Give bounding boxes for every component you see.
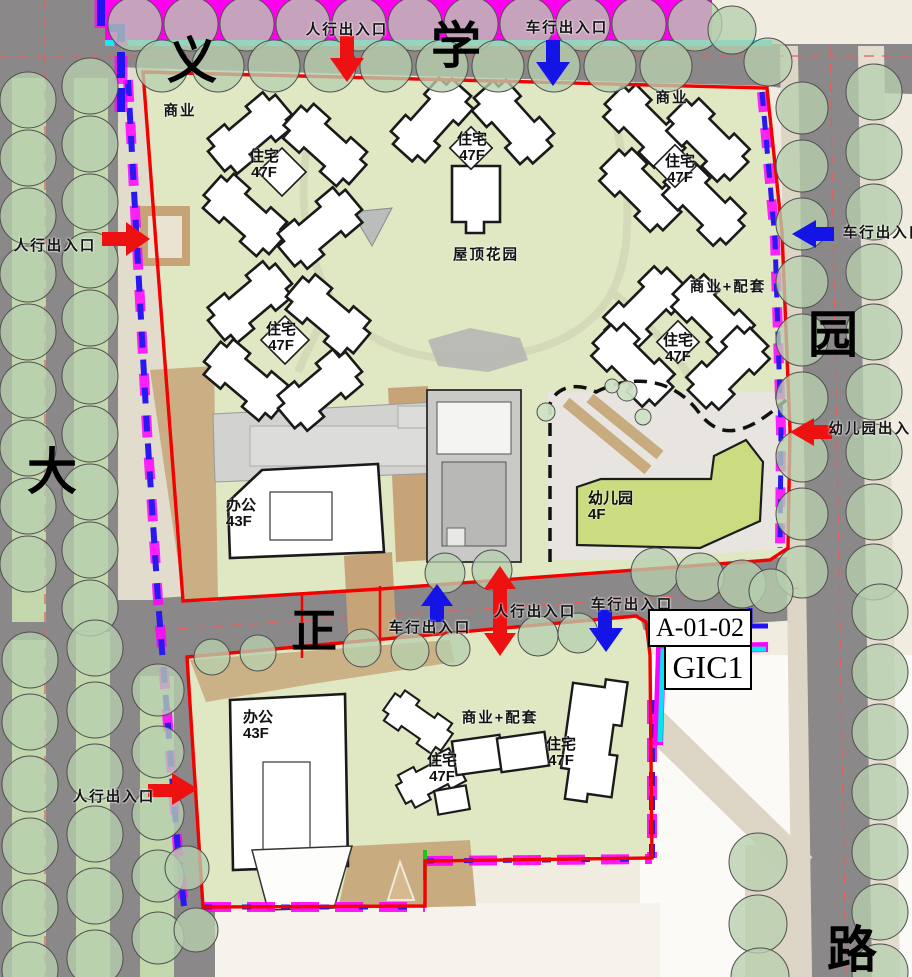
tree-icon [776,488,828,540]
tree-icon [0,304,56,360]
tree-icon [749,569,793,613]
central-podium-building [427,390,521,562]
label-commercial-ne: 商业 [656,87,689,108]
label-residential-e: 住宅47F [663,333,693,365]
tree-icon [0,362,56,418]
entrance-label-pedestrian-southwest: 人行出入口 [73,786,156,807]
label-kindergarten: 幼儿园4F [588,491,633,523]
street-name-xue: 学 [431,6,481,78]
tree-icon [132,726,184,778]
tree-icon [62,174,118,230]
tree-icon [2,694,58,750]
label-residential-lower-1: 住宅47F [427,753,457,785]
label-residential-lower-2: 住宅47F [546,737,576,769]
tree-icon [776,198,828,250]
tree-icon [194,639,230,675]
label-commercial-support-upper: 商业+配套 [690,276,766,297]
label-residential-w: 住宅47F [266,322,296,354]
label-commercial-nw: 商业 [164,100,197,121]
tree-icon [2,818,58,874]
label-roof-garden: 屋顶花园 [453,244,519,265]
tree-icon [617,381,637,401]
tree-icon [852,704,908,760]
label-office-upper: 办公43F [226,498,256,530]
tree-icon [776,82,828,134]
entrance-label-pedestrian-middle: 人行出入口 [494,601,577,622]
tree-icon [174,908,218,952]
tree-icon [62,290,118,346]
parcel-zoning-box: GIC1 [664,645,752,690]
street-name-yuan: 园 [808,295,858,367]
tree-icon [852,644,908,700]
site-plan-map: 义 学 园 大 正 路 人行出入口 车行出入口 人行出入口 车行出入口 幼儿园出… [0,0,912,977]
tree-icon [2,632,58,688]
tree-icon [676,553,724,601]
tree-icon [776,372,828,424]
tree-icon [2,756,58,812]
tree-icon [729,895,787,953]
tree-icon [744,38,792,86]
tree-icon [62,58,118,114]
tree-icon [360,40,412,92]
tree-icon [67,806,123,862]
tree-icon [0,72,56,128]
tree-icon [67,620,123,676]
tree-icon [391,632,429,670]
tree-icon [62,522,118,578]
tree-icon [846,64,902,120]
tree-icon [2,880,58,936]
tree-icon [640,40,692,92]
tree-icon [165,846,209,890]
tree-icon [584,40,636,92]
entrance-label-vehicle-north: 车行出入口 [526,17,609,38]
tree-icon [518,616,558,656]
tree-icon [240,635,276,671]
tree-icon [846,484,902,540]
tree-icon [425,553,465,593]
entrance-label-vehicle-east: 车行出入口 [843,222,912,243]
label-residential-ne: 住宅47F [665,154,695,186]
street-name-zheng: 正 [291,595,337,661]
tree-icon [62,348,118,404]
entrance-label-pedestrian-west: 人行出入口 [14,235,97,256]
tree-icon [635,409,651,425]
parcel-code-box: A-01-02 [648,609,752,647]
tree-icon [132,664,184,716]
tree-icon [852,764,908,820]
label-office-lower: 办公43F [243,710,273,742]
tree-icon [776,140,828,192]
label-residential-n: 住宅47F [457,132,487,164]
tree-icon [0,536,56,592]
tree-icon [729,833,787,891]
street-name-lu: 路 [827,910,877,977]
tree-icon [605,379,619,393]
label-commercial-support-lower: 商业+配套 [462,707,538,728]
tree-icon [537,403,555,421]
label-residential-nw: 住宅47F [249,149,279,181]
tree-icon [62,116,118,172]
tree-icon [67,682,123,738]
tree-icon [852,824,908,880]
tree-icon [0,130,56,186]
tree-icon [846,124,902,180]
street-name-yi: 义 [167,21,217,93]
tree-icon [248,40,300,92]
tree-icon [67,868,123,924]
entrance-label-vehicle-middle-1: 车行出入口 [389,617,472,638]
tree-icon [343,629,381,667]
street-name-da: 大 [27,432,77,504]
tree-icon [846,244,902,300]
tree-icon [852,584,908,640]
entrance-label-kindergarten-east: 幼儿园出入口 [829,418,912,439]
tree-icon [846,364,902,420]
tree-icon [631,548,679,596]
entrance-label-pedestrian-north: 人行出入口 [306,19,389,40]
